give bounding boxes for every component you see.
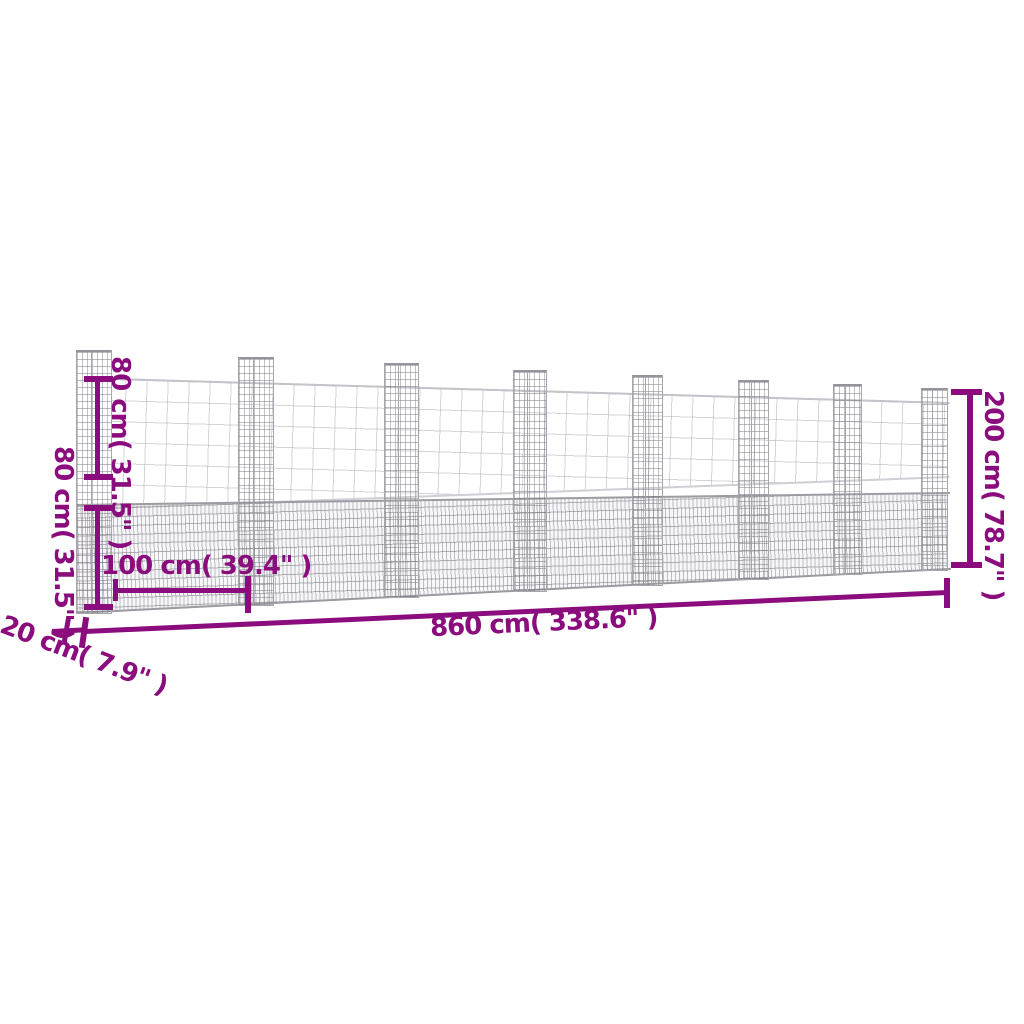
dim-tick (113, 579, 118, 601)
gabion-fence-dimension-diagram: 80 cm( 31.5" ) 80 cm( 31.5" ) 100 cm( 39… (0, 0, 1024, 1024)
dim-tick (245, 576, 251, 613)
dim-tick (84, 505, 113, 511)
dim-line-100 (115, 588, 248, 593)
dim-label-100: 100 cm( 39.4" ) (101, 553, 311, 579)
gabion-post-4 (513, 370, 547, 592)
dim-label-upper-80: 80 cm( 31.5" ) (107, 356, 133, 549)
gabion-post-7 (833, 384, 862, 575)
dim-line-200 (967, 392, 973, 565)
gabion-post-3 (384, 363, 419, 598)
gabion-post-6 (738, 380, 769, 580)
dim-line-upper-80 (95, 379, 100, 477)
dim-tick (84, 604, 113, 610)
gabion-post-5 (632, 375, 663, 586)
dim-tick (944, 578, 950, 608)
dim-label-200: 200 cm( 78.7" ) (980, 390, 1006, 600)
dim-label-lower-80: 80 cm( 31.5" ) (50, 446, 76, 639)
dim-line-lower-80 (95, 508, 100, 607)
gabion-post-8 (921, 388, 948, 571)
dim-label-860: 860 cm( 338.6" ) (430, 605, 658, 641)
